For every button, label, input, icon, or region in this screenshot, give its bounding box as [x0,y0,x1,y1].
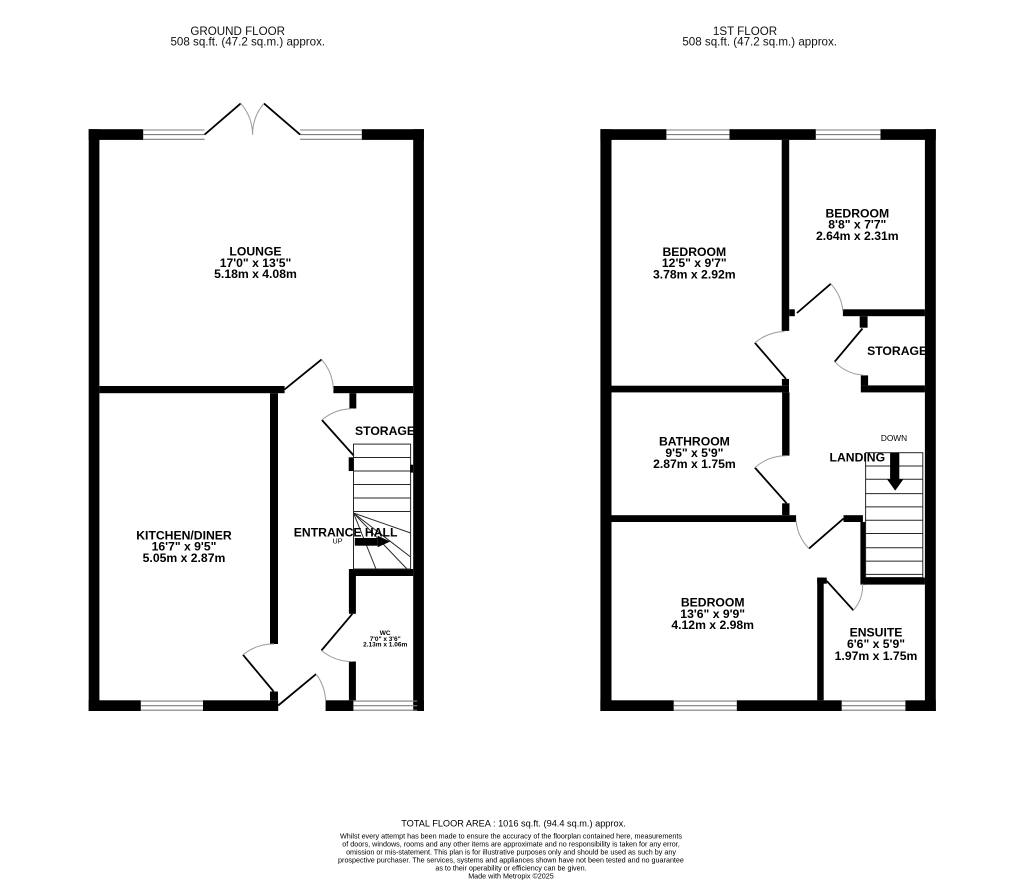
svg-text:2.87m x 1.75m: 2.87m x 1.75m [653,457,736,471]
svg-text:5.18m x 4.08m: 5.18m x 4.08m [214,267,297,281]
svg-text:2.64m x 2.31m: 2.64m x 2.31m [816,229,899,243]
svg-text:2.13m x 1.06m: 2.13m x 1.06m [363,642,407,649]
svg-text:4.12m x 2.98m: 4.12m x 2.98m [671,618,754,632]
svg-text:1.97m x 1.75m: 1.97m x 1.75m [835,649,918,663]
svg-text:5.05m x 2.87m: 5.05m x 2.87m [143,551,226,565]
svg-text:508 sq.ft. (47.2 sq.m.) approx: 508 sq.ft. (47.2 sq.m.) approx. [682,36,837,49]
svg-text:508 sq.ft. (47.2 sq.m.) approx: 508 sq.ft. (47.2 sq.m.) approx. [170,36,325,49]
svg-text:STORAGE: STORAGE [355,424,415,438]
svg-text:TOTAL FLOOR AREA : 1016 sq.ft.: TOTAL FLOOR AREA : 1016 sq.ft. (94.4 sq.… [401,819,626,829]
svg-text:STORAGE: STORAGE [867,344,927,358]
svg-text:UP: UP [333,537,343,546]
svg-text:Made with Metropix ©2025: Made with Metropix ©2025 [468,871,554,880]
svg-text:3.78m x 2.92m: 3.78m x 2.92m [653,267,736,281]
svg-text:LANDING: LANDING [830,450,886,464]
svg-text:DOWN: DOWN [881,433,907,443]
svg-text:ENTRANCE HALL: ENTRANCE HALL [294,526,398,540]
